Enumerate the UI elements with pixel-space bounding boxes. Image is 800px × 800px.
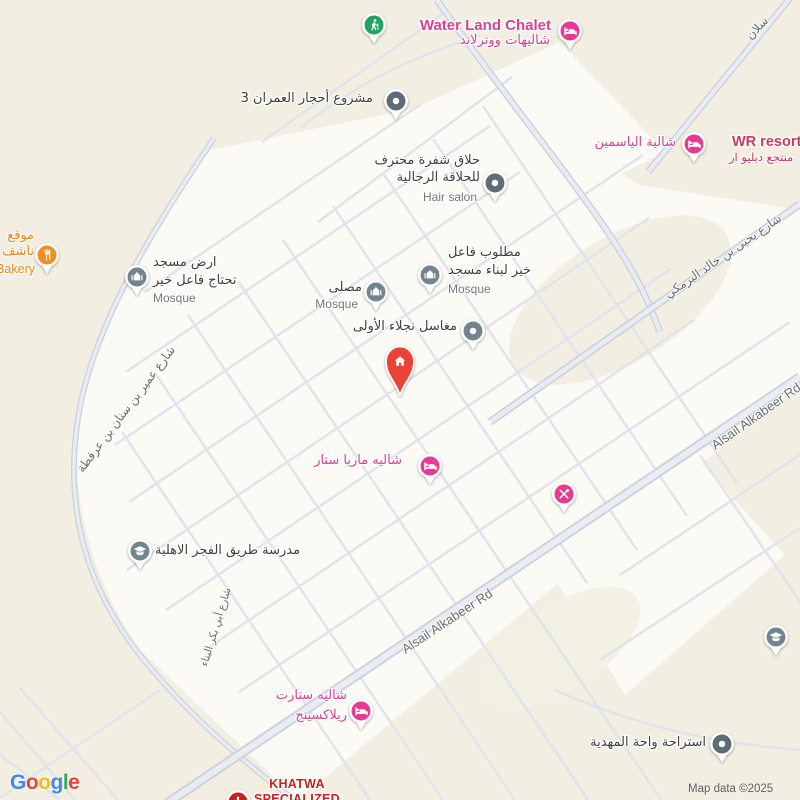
label-maria-star[interactable]: شاليه ماريا ستار [314, 454, 402, 469]
logo-letter-g1: G [10, 771, 26, 794]
label-wr-resort-ar[interactable]: منتجع دبليو ار [729, 151, 793, 164]
marker-start-relaxing[interactable] [348, 699, 374, 731]
label-mosque-land-category[interactable]: Mosque [153, 292, 196, 306]
label-yasmin-chalet[interactable]: شالية الياسمين [594, 136, 676, 151]
label-ahjar-project[interactable]: مشروع أحجار العمران 3 [241, 92, 373, 107]
marker-khatwa[interactable] [225, 789, 251, 800]
map-canvas[interactable]: Alsail Alkabeer Rd Alsail Alkabeer Rd شا… [0, 0, 800, 800]
marker-bakery[interactable] [34, 243, 60, 275]
label-start-relaxing-line2[interactable]: ريلاكسينج [295, 709, 347, 724]
marker-school[interactable] [127, 539, 153, 571]
label-musalla-category[interactable]: Mosque [315, 298, 358, 312]
marker-maghasil[interactable] [460, 319, 486, 351]
marker-yasmin-chalet[interactable] [681, 132, 707, 164]
label-mosque-needed-line1[interactable]: مطلوب فاعل [448, 246, 521, 261]
label-bakery-category[interactable]: Bakery [0, 262, 35, 276]
label-water-land-chalet-ar[interactable]: شاليهات ووترلاند [460, 34, 550, 49]
marker-beauty-spa[interactable] [551, 482, 577, 514]
label-khatwa-line1[interactable]: KHATWA [269, 777, 325, 791]
logo-letter-o2: o [38, 771, 50, 794]
logo-letter-e: e [68, 771, 79, 794]
logo-letter-g2: g [51, 771, 63, 794]
marker-hair-salon[interactable] [482, 171, 508, 203]
label-wr-resort[interactable]: WR resort [732, 134, 800, 151]
google-logo[interactable]: Google [10, 771, 79, 795]
marker-destination-home[interactable] [382, 340, 418, 398]
label-school[interactable]: مدرسة طريق الفجر الاهلية [155, 544, 300, 559]
label-start-relaxing-line1[interactable]: شاليه ستارت [276, 689, 347, 704]
label-mahdia[interactable]: استراحة واحة المهدية [590, 736, 706, 751]
marker-school-2[interactable] [763, 625, 789, 657]
label-mosque-land-line2[interactable]: تحتاج فاعل خير [153, 274, 236, 289]
label-maghasil[interactable]: مغاسل نجلاء الأولى [353, 320, 457, 335]
marker-maria-star[interactable] [417, 454, 443, 486]
logo-letter-o1: o [26, 771, 38, 794]
label-hair-salon-category[interactable]: Hair salon [423, 191, 477, 205]
label-khatwa-line2[interactable]: SPECIALIZED [254, 792, 340, 800]
label-mosque-needed-category[interactable]: Mosque [448, 283, 491, 297]
dot-icon [393, 98, 400, 105]
label-bakery-line1[interactable]: موقع [7, 229, 34, 244]
dot-icon [719, 741, 726, 748]
dot-icon [470, 328, 477, 335]
marker-musalla[interactable] [363, 280, 389, 312]
marker-hiking-attraction[interactable] [361, 13, 387, 45]
label-bakery-line2[interactable]: ناشف [2, 245, 34, 260]
dot-icon [492, 180, 499, 187]
marker-ahjar-project[interactable] [383, 89, 409, 121]
label-water-land-chalet[interactable]: Water Land Chalet [420, 17, 551, 34]
label-hair-salon-line1[interactable]: حلاق شفرة محترف [374, 154, 480, 169]
label-mosque-needed-line2[interactable]: خير لبناء مسجد [448, 264, 531, 279]
marker-water-land-chalet[interactable] [557, 19, 583, 51]
label-musalla[interactable]: مصلى [329, 281, 362, 296]
marker-mosque-needed[interactable] [417, 263, 443, 295]
marker-mosque-land[interactable] [124, 265, 150, 297]
marker-mahdia[interactable] [709, 732, 735, 764]
map-attribution: Map data ©2025 [688, 783, 773, 795]
label-mosque-land-line1[interactable]: ارض مسجد [153, 256, 217, 271]
label-hair-salon-line2[interactable]: للحلاقة الرجالية [397, 171, 480, 186]
